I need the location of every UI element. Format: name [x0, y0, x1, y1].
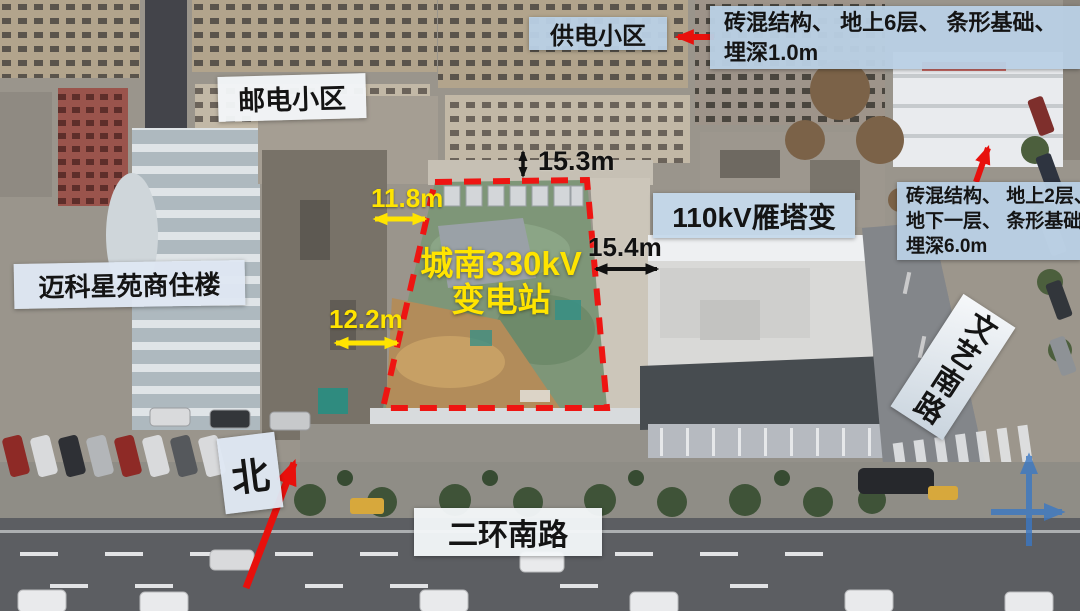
dimension-west-upper: 11.8m — [371, 183, 443, 214]
axes-icon — [991, 456, 1062, 546]
label-north: 北 — [217, 432, 284, 515]
label-power-supply-block: 供电小区 — [529, 17, 667, 50]
note-right-building: 砖混结构、 地上2层、 地下一层、 条形基础、 埋深6.0m — [897, 182, 1080, 260]
dimension-east: 15.4m — [588, 232, 662, 263]
dimension-top: 15.3m — [538, 146, 615, 177]
label-yanta-110kv-substation: 110kV雁塔变 — [653, 193, 855, 238]
label-maike-residence: 迈科星苑商住楼 — [14, 260, 246, 309]
label-site-name: 城南330kV 变电站 — [400, 246, 602, 318]
site-plan-figure: 供电小区 砖混结构、 地上6层、 条形基础、 埋深1.0m 邮电小区 迈科星苑商… — [0, 0, 1080, 611]
label-post-telecom-block: 邮电小区 — [217, 73, 366, 122]
note-top-right: 砖混结构、 地上6层、 条形基础、 埋深1.0m — [710, 6, 1080, 69]
label-second-ring-south-road: 二环南路 — [414, 508, 602, 556]
pointer-arrow-right-building-icon — [976, 148, 988, 182]
dimension-west-lower: 12.2m — [329, 304, 403, 335]
